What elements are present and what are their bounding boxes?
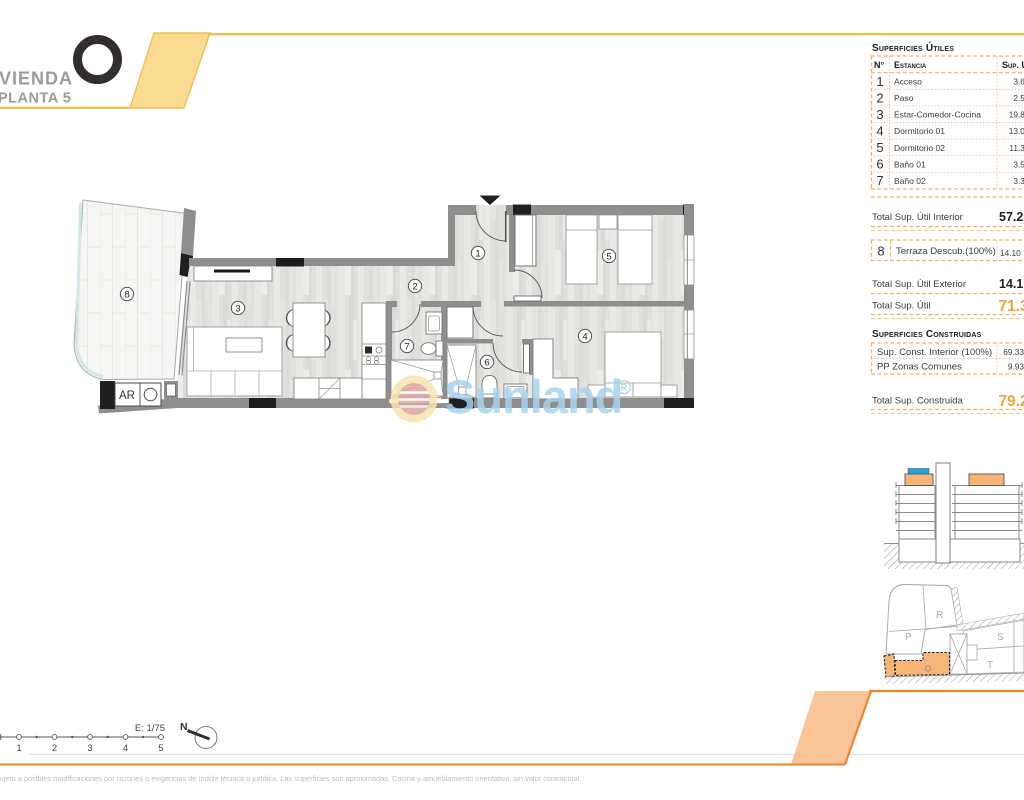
svg-text:3: 3 bbox=[235, 303, 240, 314]
svg-text:11.33: 11.33 bbox=[1009, 143, 1024, 153]
svg-text:4: 4 bbox=[123, 743, 128, 754]
svg-text:Estancia: Estancia bbox=[894, 60, 927, 70]
svg-text:8: 8 bbox=[124, 289, 129, 300]
svg-text:Sup. Útil(m²): Sup. Útil(m²) bbox=[1002, 59, 1024, 70]
svg-text:Dormitorio 02: Dormitorio 02 bbox=[894, 143, 945, 153]
svg-text:Sunland: Sunland bbox=[444, 370, 622, 423]
svg-text:T: T bbox=[987, 660, 993, 671]
svg-text:3.65: 3.65 bbox=[1013, 77, 1024, 87]
svg-text:S: S bbox=[997, 632, 1004, 643]
svg-text:PLANTA 5: PLANTA 5 bbox=[0, 91, 71, 107]
svg-text:7: 7 bbox=[404, 341, 409, 352]
svg-text:sujeto a posibles modificacion: sujeto a posibles modificaciones por raz… bbox=[0, 774, 581, 783]
svg-text:5: 5 bbox=[606, 251, 611, 262]
svg-text:4: 4 bbox=[582, 331, 587, 342]
svg-text:6: 6 bbox=[876, 157, 883, 172]
svg-text:57.26: 57.26 bbox=[999, 210, 1024, 224]
svg-text:3.50: 3.50 bbox=[1013, 159, 1024, 169]
svg-text:Total Sup. Útil: Total Sup. Útil bbox=[872, 301, 931, 312]
svg-text:8: 8 bbox=[877, 244, 884, 259]
svg-text:R: R bbox=[936, 610, 943, 621]
svg-text:Estar-Comedor-Cocina: Estar-Comedor-Cocina bbox=[894, 110, 981, 120]
svg-text:Acceso: Acceso bbox=[894, 77, 922, 87]
svg-text:4: 4 bbox=[876, 124, 883, 139]
svg-text:9.93: 9.93 bbox=[1008, 362, 1024, 372]
svg-text:2: 2 bbox=[412, 281, 417, 292]
svg-text:3: 3 bbox=[876, 107, 883, 122]
svg-text:Total Sup. Útil Interior: Total Sup. Útil Interior bbox=[872, 212, 963, 223]
svg-text:VIVIENDA: VIVIENDA bbox=[0, 69, 73, 89]
svg-text:N°: N° bbox=[874, 60, 884, 70]
svg-text:Terraza Descub.(100%): Terraza Descub.(100%) bbox=[896, 246, 996, 257]
svg-text:2: 2 bbox=[52, 743, 57, 754]
svg-text:1: 1 bbox=[16, 743, 21, 754]
svg-text:71.36: 71.36 bbox=[999, 298, 1024, 315]
svg-text:Dormitorio 01: Dormitorio 01 bbox=[894, 126, 945, 136]
svg-text:19.83: 19.83 bbox=[1009, 110, 1024, 120]
svg-text:Total Sup. Construida: Total Sup. Construida bbox=[872, 396, 964, 407]
svg-text:Superficies Útiles: Superficies Útiles bbox=[872, 41, 954, 54]
svg-text:14.10: 14.10 bbox=[1000, 248, 1021, 258]
svg-text:2: 2 bbox=[876, 91, 883, 106]
svg-text:14.10: 14.10 bbox=[999, 277, 1024, 291]
svg-text:2.52: 2.52 bbox=[1013, 93, 1024, 103]
svg-text:Superficies Construidas: Superficies Construidas bbox=[872, 329, 982, 340]
svg-text:Sup. Const. Interior (100%): Sup. Const. Interior (100%) bbox=[877, 347, 992, 358]
svg-text:5: 5 bbox=[158, 743, 163, 754]
svg-text:Baño 02: Baño 02 bbox=[894, 176, 926, 186]
svg-text:N: N bbox=[180, 721, 188, 733]
svg-text:AR: AR bbox=[119, 390, 135, 402]
svg-text:5: 5 bbox=[876, 140, 883, 155]
svg-text:E: 1/75: E: 1/75 bbox=[135, 723, 165, 734]
svg-text:6: 6 bbox=[484, 357, 489, 368]
svg-text:79.26: 79.26 bbox=[999, 393, 1024, 410]
svg-text:PP Zonas Comunes: PP Zonas Comunes bbox=[877, 362, 962, 373]
svg-text:P: P bbox=[905, 632, 912, 643]
svg-text:Baño 01: Baño 01 bbox=[894, 159, 926, 169]
svg-text:13.05: 13.05 bbox=[1009, 126, 1024, 136]
svg-text:3.34: 3.34 bbox=[1013, 176, 1024, 186]
svg-text:69.33: 69.33 bbox=[1003, 347, 1024, 357]
svg-text:7: 7 bbox=[876, 173, 883, 188]
svg-text:Total Sup. Útil Exterior: Total Sup. Útil Exterior bbox=[872, 279, 966, 290]
svg-text:R: R bbox=[621, 383, 628, 393]
svg-text:O: O bbox=[925, 665, 931, 674]
svg-text:Paso: Paso bbox=[894, 93, 914, 103]
svg-text:1: 1 bbox=[876, 74, 883, 89]
svg-text:1: 1 bbox=[475, 248, 480, 259]
svg-text:3: 3 bbox=[87, 743, 92, 754]
